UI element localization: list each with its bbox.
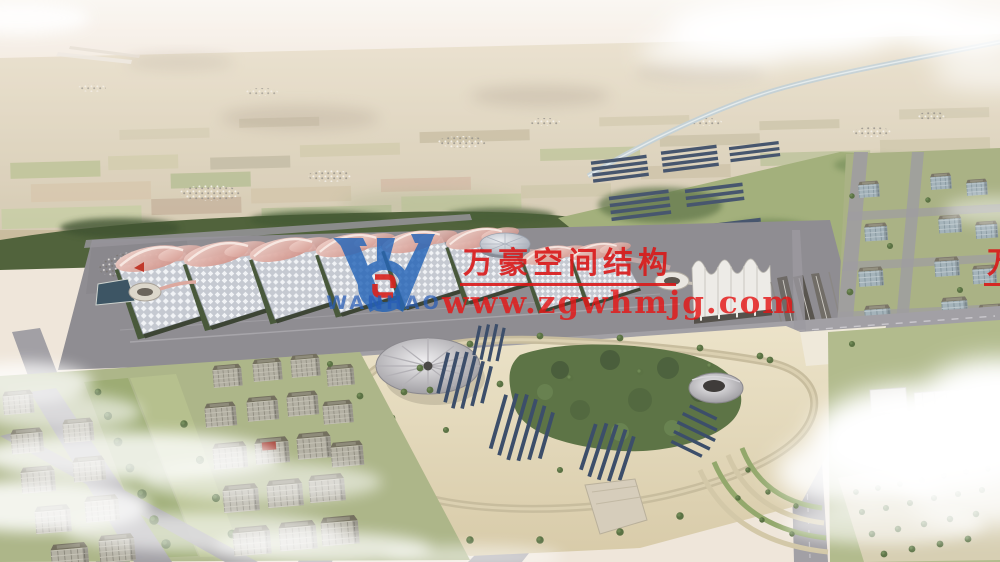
watermark-logo-text: WANHAO <box>310 292 458 314</box>
funnel-pavilion <box>689 373 743 403</box>
aerial-render: WANHAO 万豪空间结构 万豪空间结构 www.zgwhmjg.com <box>0 0 1000 562</box>
website-watermark: www.zgwhmjg.com <box>442 285 797 321</box>
company-name-watermark-right: 万豪空间结构 <box>984 247 1000 286</box>
company-name-watermark: 万豪空间结构 <box>460 247 676 286</box>
